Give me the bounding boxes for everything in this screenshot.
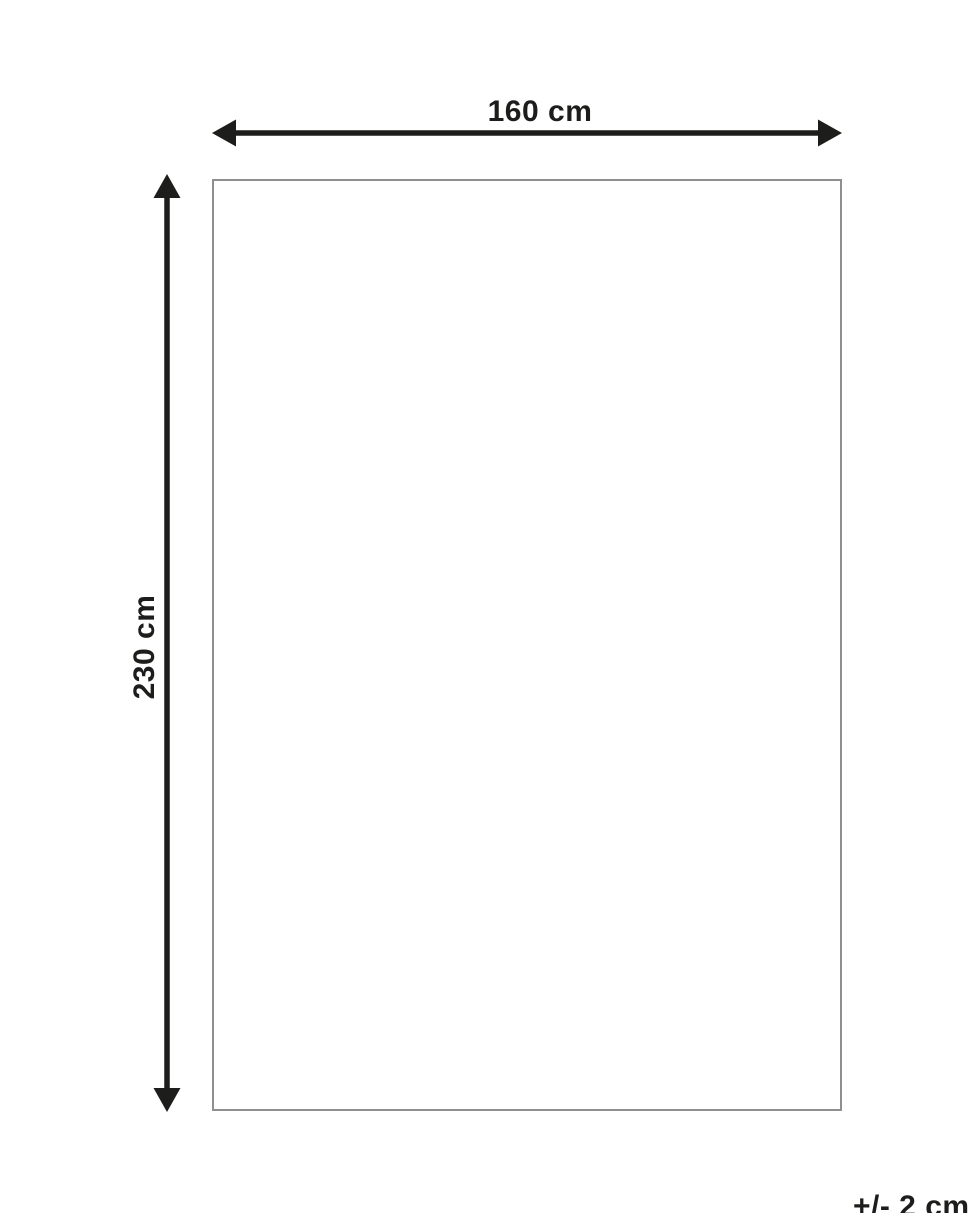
width-arrow-right-head-icon [818,120,842,147]
dimension-diagram: 160 cm 230 cm +/- 2 cm [0,0,970,1213]
height-arrow-bottom-head-icon [154,1088,181,1112]
width-arrow-left-head-icon [212,120,236,147]
product-outline-rectangle [212,179,842,1111]
tolerance-label: +/- 2 cm [853,1190,970,1213]
width-label: 160 cm [440,95,640,129]
height-label: 230 cm [128,547,162,747]
height-arrow-top-head-icon [154,174,181,198]
